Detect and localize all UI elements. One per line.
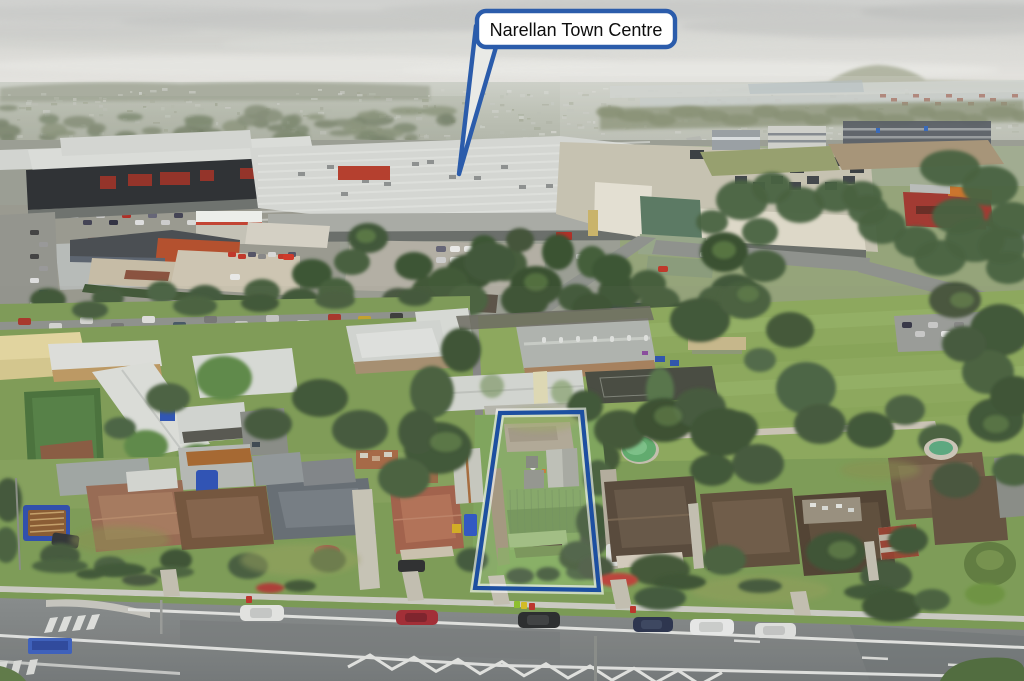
svg-text:Narellan Town Centre: Narellan Town Centre	[490, 20, 663, 40]
